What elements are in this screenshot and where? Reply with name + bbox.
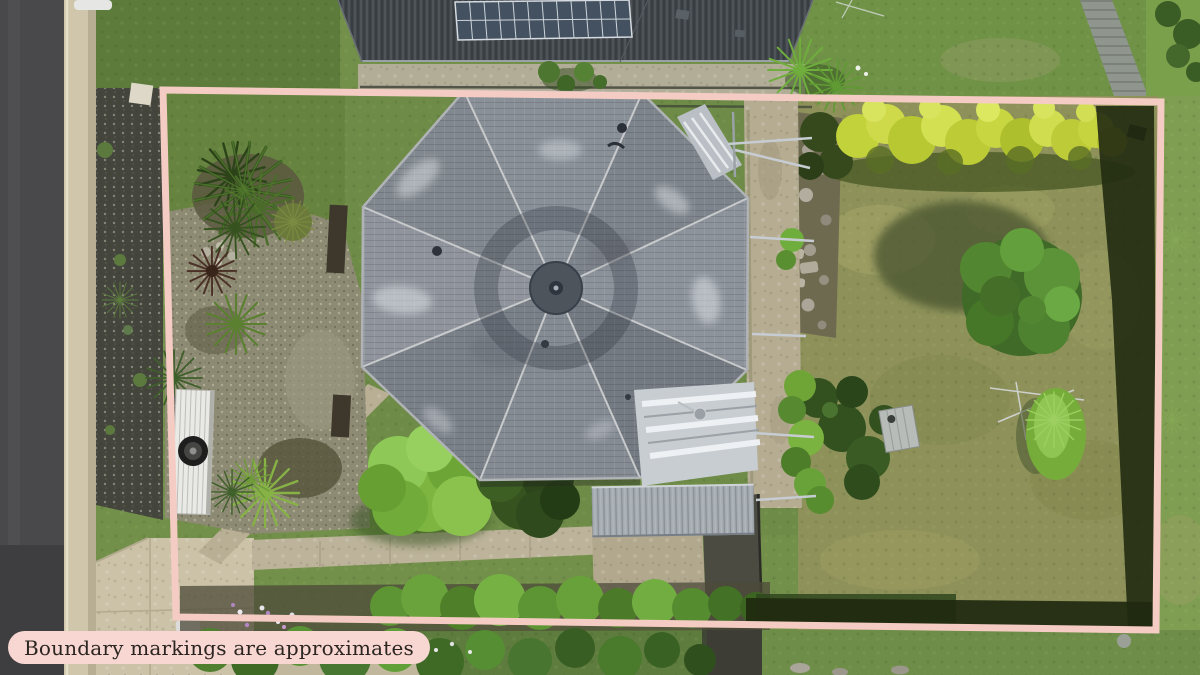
aerial-photo: Boundary markings are approximates <box>0 0 1200 675</box>
timber-edging <box>326 205 348 274</box>
garage-roof <box>592 485 755 538</box>
boundary-disclaimer-pill: Boundary markings are approximates <box>8 631 430 664</box>
concrete-pad <box>129 83 154 106</box>
parked-car <box>74 0 112 10</box>
weed <box>1160 224 1192 256</box>
yucca-plant <box>206 294 266 354</box>
roof-vent <box>432 246 442 256</box>
timber-edging <box>331 395 351 438</box>
garden-shed <box>879 405 920 452</box>
palm-plant <box>768 38 832 102</box>
white-zigzag-roof <box>634 382 760 486</box>
weed <box>102 282 138 318</box>
boundary-disclaimer-text: Boundary markings are approximates <box>24 636 414 660</box>
corner-ball <box>1117 634 1131 648</box>
weed <box>1158 406 1186 434</box>
roof-vent <box>541 340 549 348</box>
scene-graphic <box>0 0 1200 675</box>
